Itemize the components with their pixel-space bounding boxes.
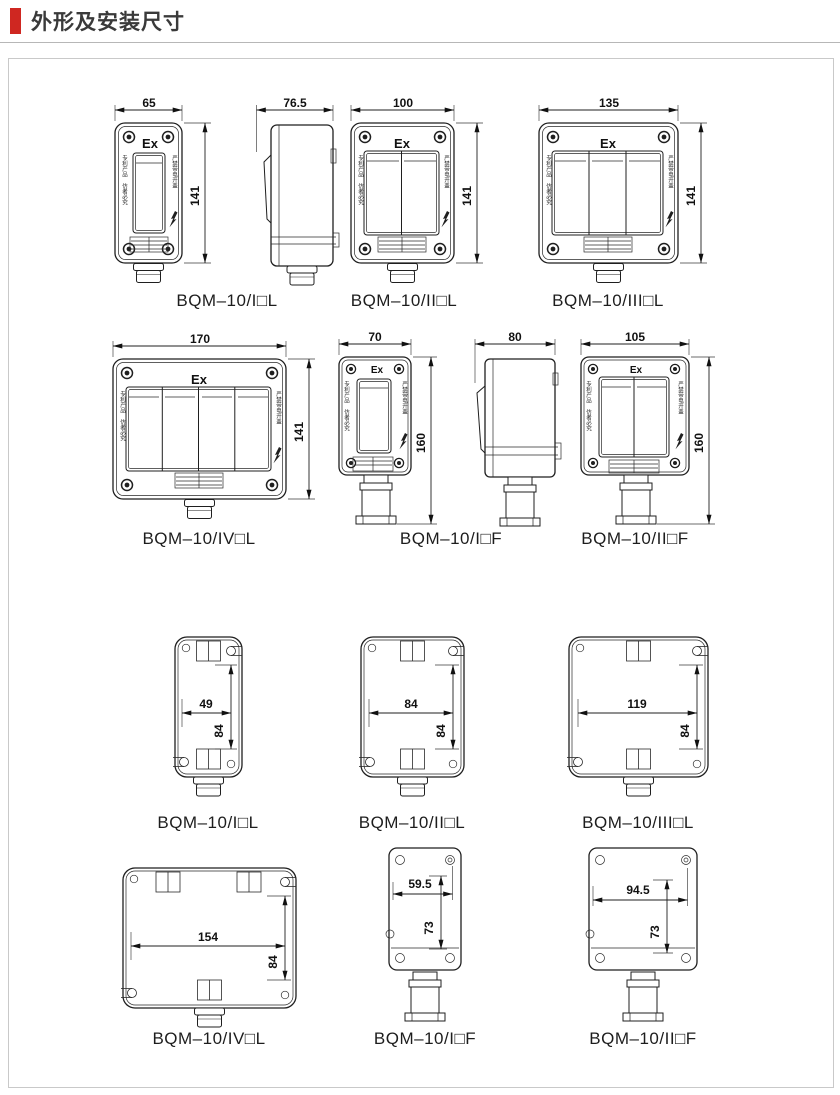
drawing-side-bqm10-L: 76.5 [241,97,341,297]
dim-depth: 80 [508,330,522,344]
side-text-left: 专利产品 仿者必究 [585,380,592,433]
diagram-panel: Ex 专利产品 仿者必究 严禁带电开盖 65 141 [8,58,834,1088]
dim-height: 141 [684,186,698,206]
dim-mount-width: 94.5 [626,883,650,897]
side-text-left: 专利产品 仿者必究 [121,154,128,207]
drawing-back-bqm10-1gang-F: 59.5 73 [387,846,463,1031]
side-text-right: 严禁带电开盖 [677,381,684,415]
dim-height: 141 [188,186,202,206]
side-text-right: 严禁带电开盖 [443,155,450,189]
ex-marking: Ex [142,136,159,151]
side-text-left: 专利产品 仿者必究 [343,380,350,433]
dim-height: 160 [414,433,428,453]
drawing-back-bqm10-2gang-F: 94.5 73 [587,846,699,1031]
drawing-front-bqm10-4gang-L: Ex 专利产品 仿者必究 严禁带电开盖 170 141 [111,333,324,533]
figure-label: BQM–10/III□L [528,813,748,833]
dim-height: 141 [292,422,306,442]
dim-mount-height: 84 [266,955,280,969]
figure-label: BQM–10/III□L [498,291,718,311]
lightning-icon [442,211,450,227]
lightning-icon [274,447,282,463]
dim-width: 105 [625,330,645,344]
dim-mount-height: 84 [678,724,692,738]
page: 外形及安装尺寸 Ex 专利产品 仿者必究 严禁带电开盖 65 [0,0,840,1095]
side-text-right: 严禁带电开盖 [171,155,178,189]
dim-mount-width: 84 [404,697,418,711]
dim-mount-height: 84 [434,724,448,738]
figure-label: BQM–10/IV□L [89,529,309,549]
page-title: 外形及安装尺寸 [31,6,185,36]
side-text-right: 严禁带电开盖 [275,391,282,425]
drawing-front-bqm10-1gang-F: Ex 专利产品 仿者必究 严禁带电开盖 70 160 [337,331,449,546]
drawing-front-bqm10-2gang-L: Ex 专利产品 仿者必究 严禁带电开盖 100 141 [349,97,492,297]
drawing-back-bqm10-2gang-L: 84 84 [359,635,466,805]
lightning-icon [676,433,684,449]
figure-label: BQM–10/I□F [315,1029,535,1049]
side-text-left: 专利产品 仿者必究 [119,390,126,443]
dim-depth: 76.5 [283,96,307,110]
drawing-front-bqm10-3gang-L: Ex 专利产品 仿者必究 严禁带电开盖 135 141 [537,97,716,297]
dim-width: 70 [368,330,382,344]
dim-mount-width: 154 [198,930,218,944]
dim-mount-width: 119 [627,697,647,711]
lightning-icon [170,211,178,227]
dim-height: 141 [460,186,474,206]
section-header: 外形及安装尺寸 [0,0,840,43]
figure-label: BQM–10/II□L [302,813,522,833]
dim-width: 135 [599,96,619,110]
side-text-right: 严禁带电开盖 [401,381,408,415]
drawing-back-bqm10-4gang-L: 154 84 [121,866,298,1036]
side-text-right: 严禁带电开盖 [667,155,674,189]
figure-label: BQM–10/I□L [98,813,318,833]
lightning-icon [666,211,674,227]
dim-mount-width: 59.5 [408,877,432,891]
drawing-back-bqm10-1gang-L: 49 84 [173,635,244,805]
dim-mount-height: 73 [422,921,436,935]
ex-marking: Ex [630,365,643,376]
drawing-front-bqm10-1gang-L: Ex 专利产品 仿者必究 严禁带电开盖 65 141 [113,97,220,297]
side-text-left: 专利产品 仿者必究 [357,154,364,207]
dim-width: 65 [142,96,156,110]
dim-height: 160 [692,433,706,453]
ex-marking: Ex [191,372,208,387]
dim-mount-height: 73 [648,925,662,939]
drawing-side-bqm10-F: 80 [451,331,566,546]
side-text-left: 专利产品 仿者必究 [545,154,552,207]
figure-label: BQM–10/II□F [533,1029,753,1049]
drawing-back-bqm10-3gang-L: 119 84 [567,635,710,805]
dim-mount-height: 84 [212,724,226,738]
red-accent-bar [10,8,21,34]
ex-marking: Ex [600,136,617,151]
lightning-icon [400,433,408,449]
dim-width: 100 [393,96,413,110]
dim-width: 170 [190,332,210,346]
ex-marking: Ex [394,136,411,151]
figure-label: BQM–10/II□L [294,291,514,311]
drawing-front-bqm10-2gang-F: Ex 专利产品 仿者必究 严禁带电开盖 105 160 [579,331,727,546]
figure-label: BQM–10/IV□L [99,1029,319,1049]
figure-label: BQM–10/II□F [525,529,745,549]
ex-marking: Ex [371,365,384,376]
dim-mount-width: 49 [199,697,213,711]
